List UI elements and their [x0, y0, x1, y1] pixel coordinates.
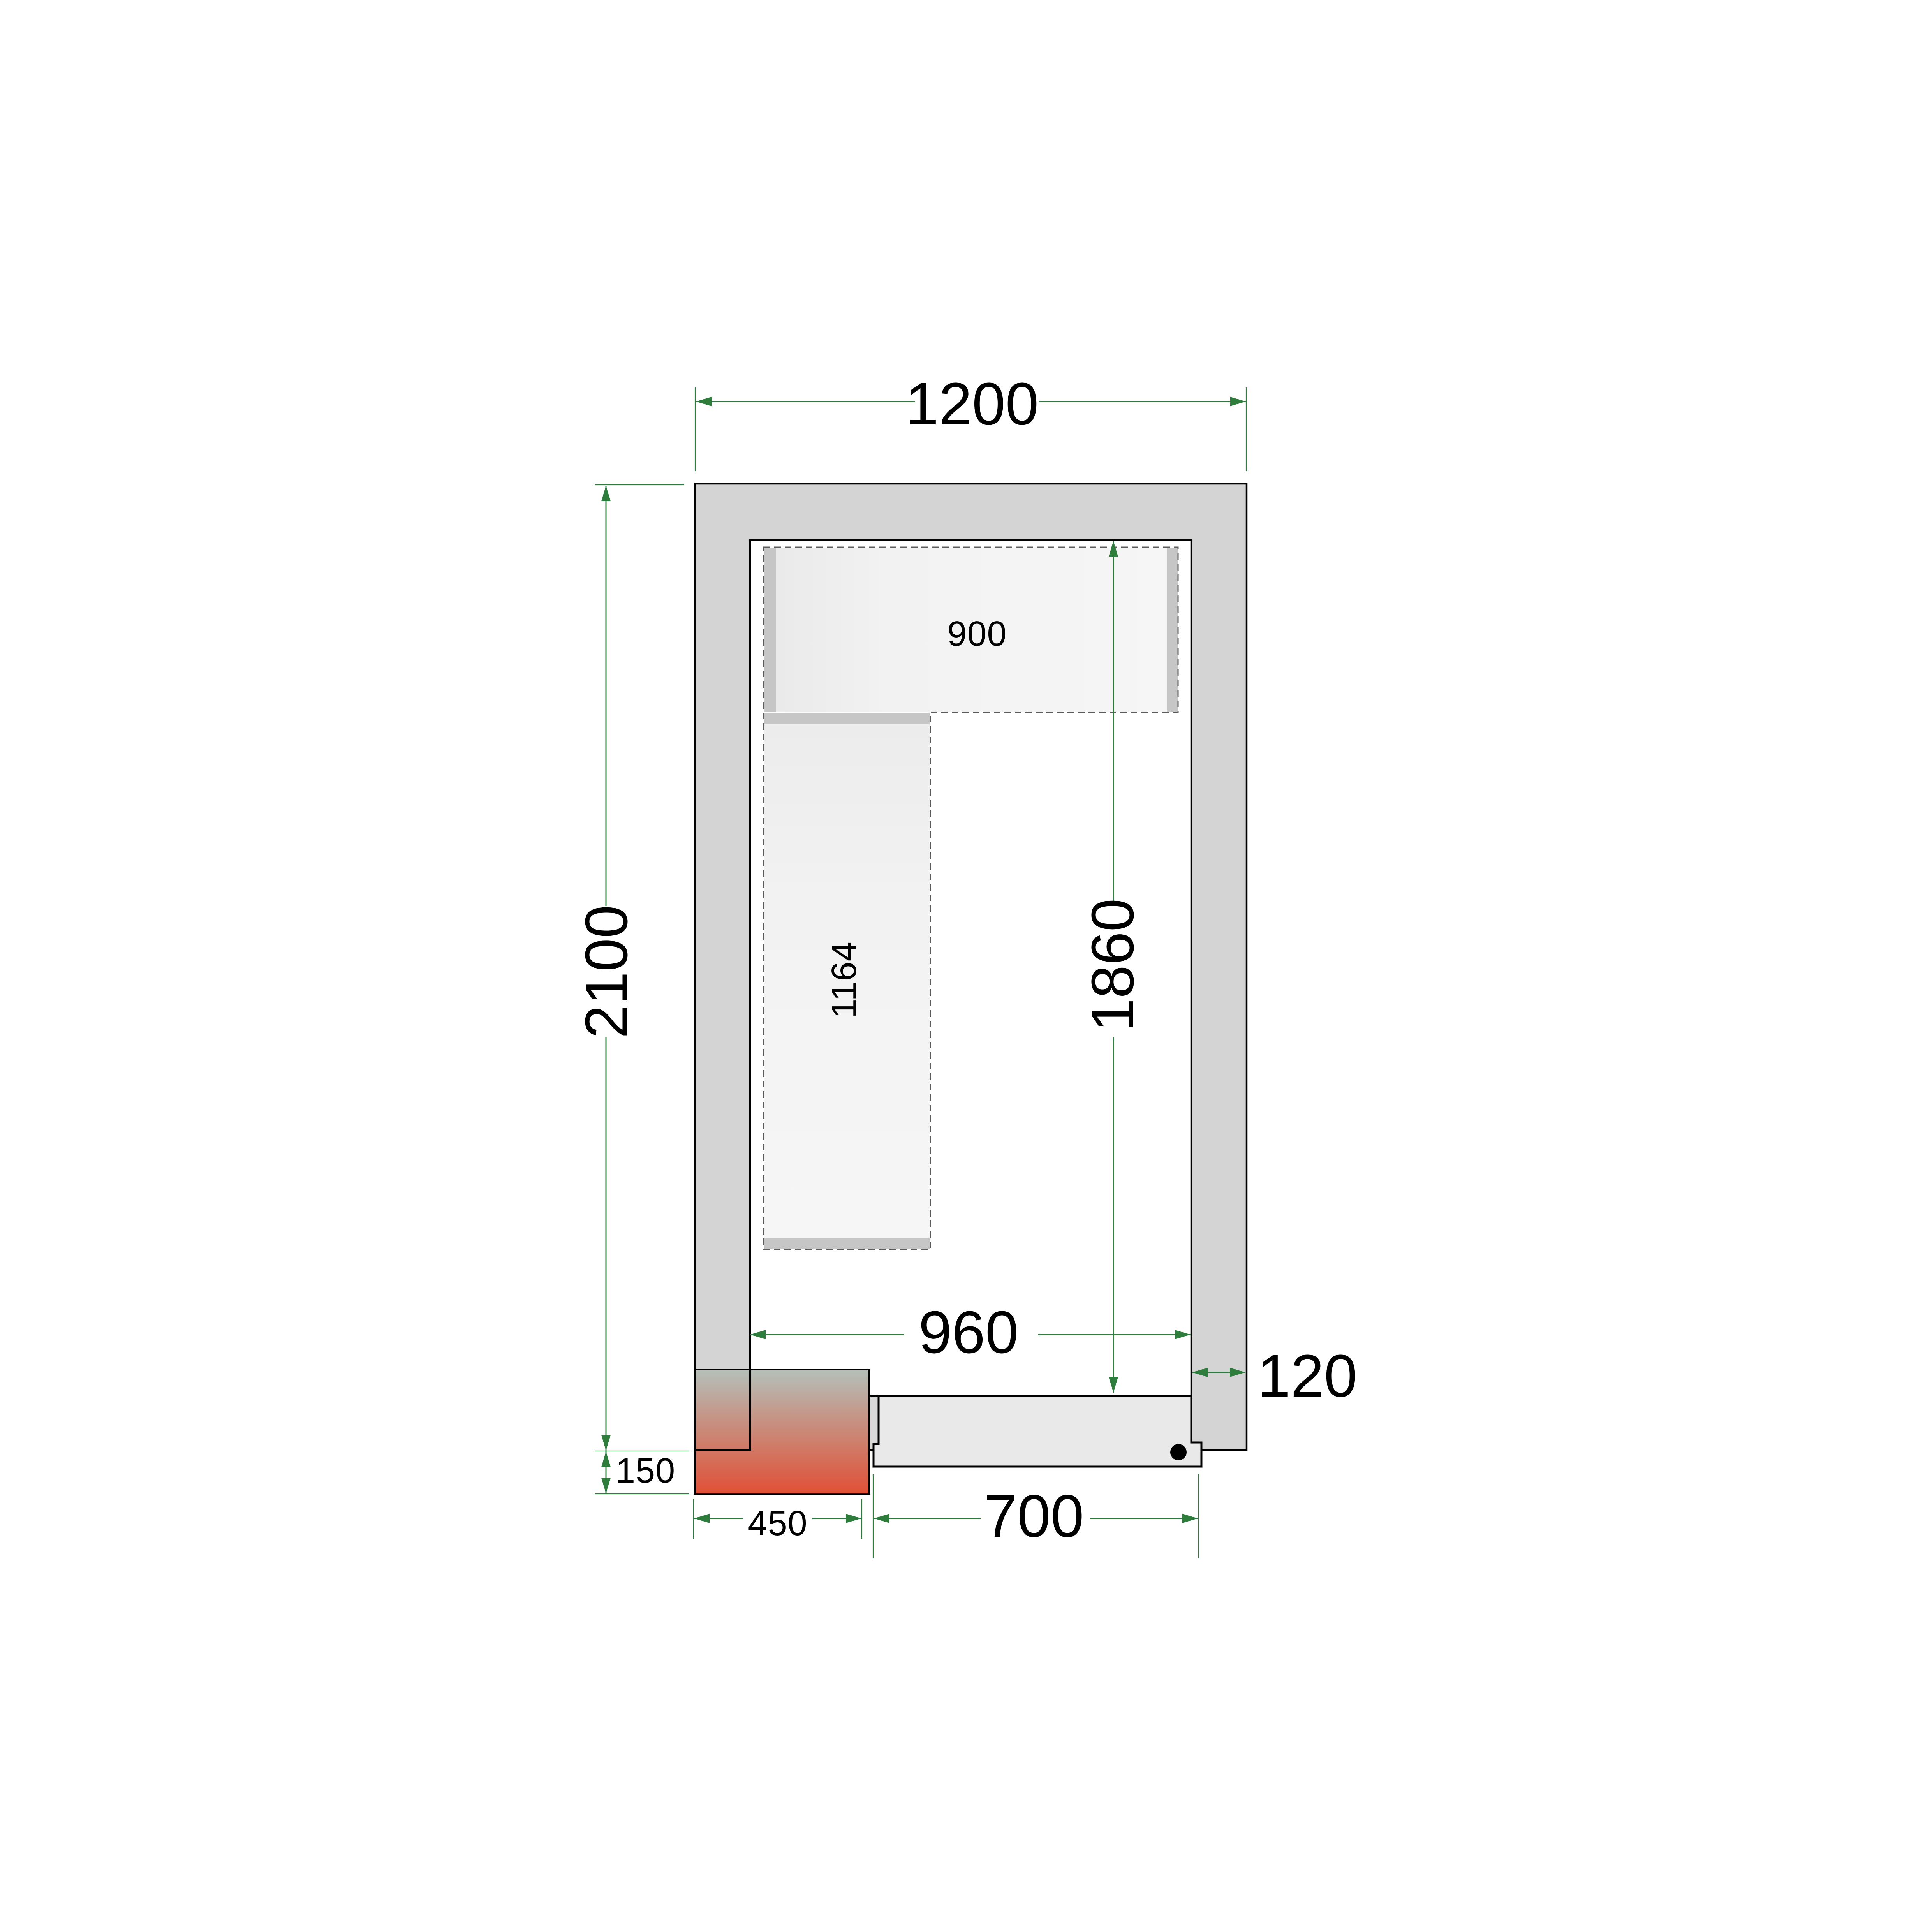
svg-text:120: 120: [1257, 1342, 1358, 1409]
svg-text:960: 960: [919, 1299, 1019, 1366]
svg-text:450: 450: [748, 1504, 807, 1543]
svg-text:150: 150: [616, 1451, 675, 1490]
svg-text:700: 700: [984, 1483, 1084, 1550]
svg-text:1200: 1200: [905, 370, 1039, 437]
svg-text:900: 900: [947, 615, 1007, 653]
svg-text:1164: 1164: [825, 941, 864, 1018]
svg-text:2100: 2100: [573, 905, 640, 1039]
svg-text:1860: 1860: [1079, 898, 1146, 1032]
